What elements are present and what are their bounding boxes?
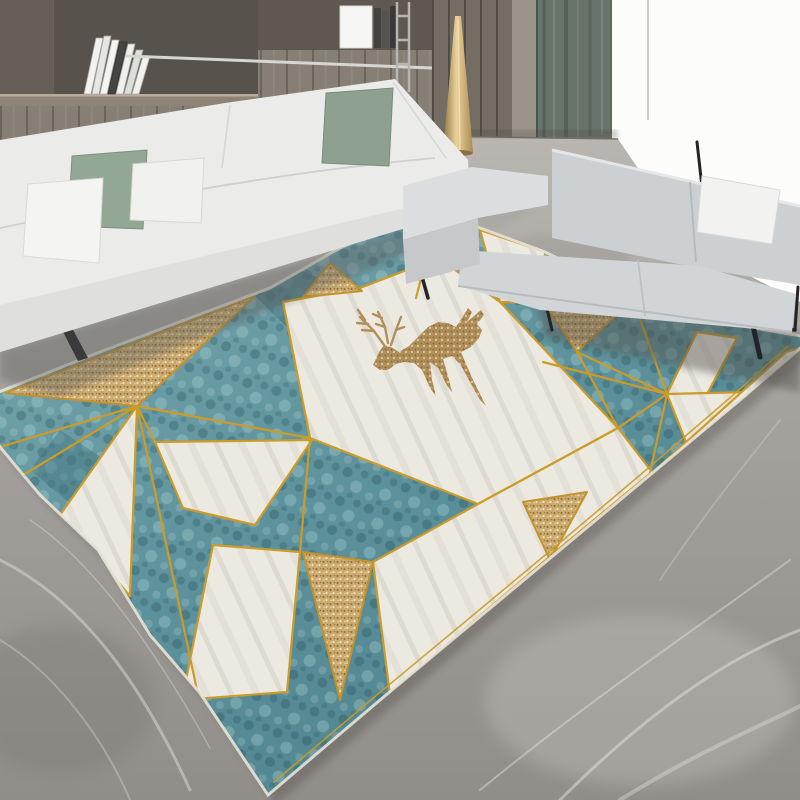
wood-cabinet	[432, 0, 512, 138]
pillow-white-1	[23, 178, 103, 263]
pillow-white-2	[130, 158, 204, 223]
living-room-photo	[0, 0, 800, 800]
curtain	[536, 0, 618, 139]
shelf-opening	[54, 0, 258, 96]
stone-wall-strip	[512, 0, 538, 138]
floor-light-patch	[485, 615, 795, 785]
living-room-photo-stage	[0, 0, 800, 800]
pillow-sage-2	[322, 88, 393, 166]
books-right	[340, 6, 397, 48]
shelf-opening-left	[0, 0, 54, 96]
